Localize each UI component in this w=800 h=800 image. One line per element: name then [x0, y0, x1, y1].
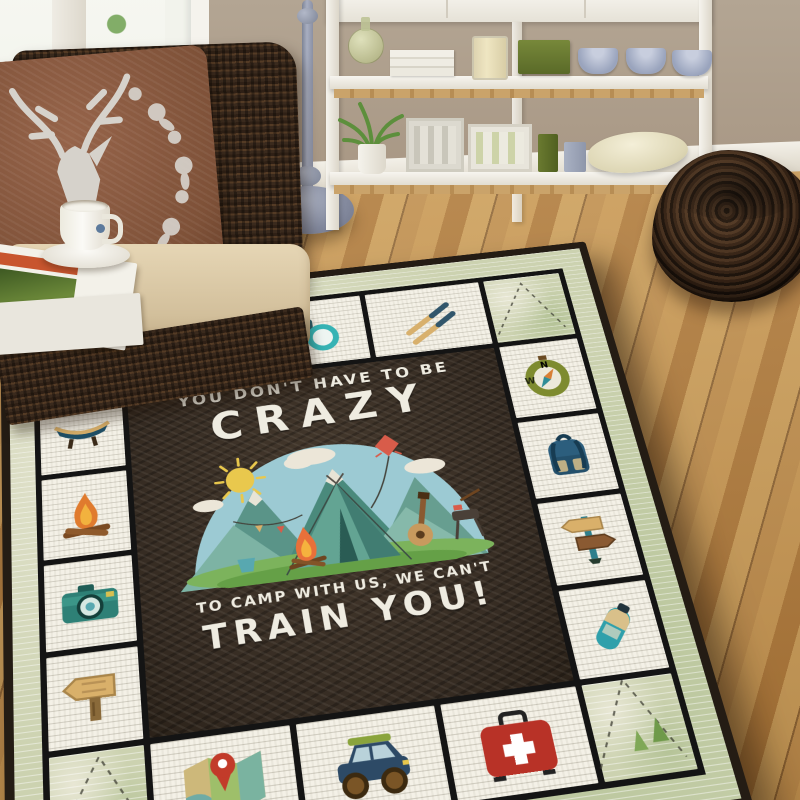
- storage-box: [468, 124, 532, 172]
- rug-tile: [296, 706, 451, 800]
- magazine: [0, 293, 144, 355]
- rug-tiles-left: [39, 391, 143, 751]
- green-box: [518, 40, 570, 74]
- water-bottle-icon: [558, 580, 669, 680]
- shelf-board: [330, 172, 708, 185]
- plant-pot: [358, 144, 386, 174]
- rug-tile: [44, 555, 137, 652]
- shelf-unit: [326, 0, 712, 230]
- first-aid-kit-icon: [440, 686, 599, 800]
- chair-leg: [274, 376, 300, 418]
- green-jar: [538, 134, 558, 172]
- potted-plant: [336, 100, 406, 172]
- cup-logo: [96, 224, 105, 233]
- room-scene: YOU DON'T HAVE TO BE CRAZY: [0, 0, 800, 800]
- bowl: [672, 50, 712, 76]
- shelf-slats: [334, 185, 704, 194]
- blue-candle: [564, 142, 586, 172]
- rug-corner: [581, 673, 697, 782]
- rug-tile: [46, 646, 143, 751]
- rug-tile: [440, 686, 599, 800]
- rug-tile: [150, 725, 302, 800]
- rug-tile: [42, 470, 132, 560]
- backpack-icon: [517, 413, 618, 499]
- rug-tile: [537, 493, 643, 585]
- shelf-slats: [334, 89, 704, 98]
- camera-icon: [44, 555, 137, 652]
- rug-tile: NW: [499, 338, 596, 418]
- bowl: [578, 48, 618, 74]
- matches-icon: [364, 282, 492, 357]
- rug-corner: [483, 273, 575, 343]
- rug-tile: [517, 413, 618, 499]
- lamp-knob: [297, 8, 318, 24]
- rug-tile: [364, 282, 492, 357]
- rug-tile: [558, 580, 669, 680]
- wicker-armchair: UARY: [0, 46, 334, 418]
- map-icon: [150, 725, 302, 800]
- book-stack: [390, 50, 454, 76]
- leaf-bowl: [586, 127, 690, 177]
- bowl: [626, 48, 666, 74]
- shelf-top-drawers: [326, 0, 712, 22]
- compass-icon: NW: [499, 338, 596, 418]
- campfire-icon: [42, 470, 132, 560]
- car-icon: [296, 706, 451, 800]
- signpost-icon: [537, 493, 643, 585]
- shelf-board: [330, 76, 708, 89]
- trail-sign-icon: [46, 646, 143, 751]
- storage-box: [406, 118, 464, 172]
- rug-corner: [49, 745, 150, 800]
- candle-jar: [472, 36, 508, 80]
- glass-vase: [348, 28, 384, 64]
